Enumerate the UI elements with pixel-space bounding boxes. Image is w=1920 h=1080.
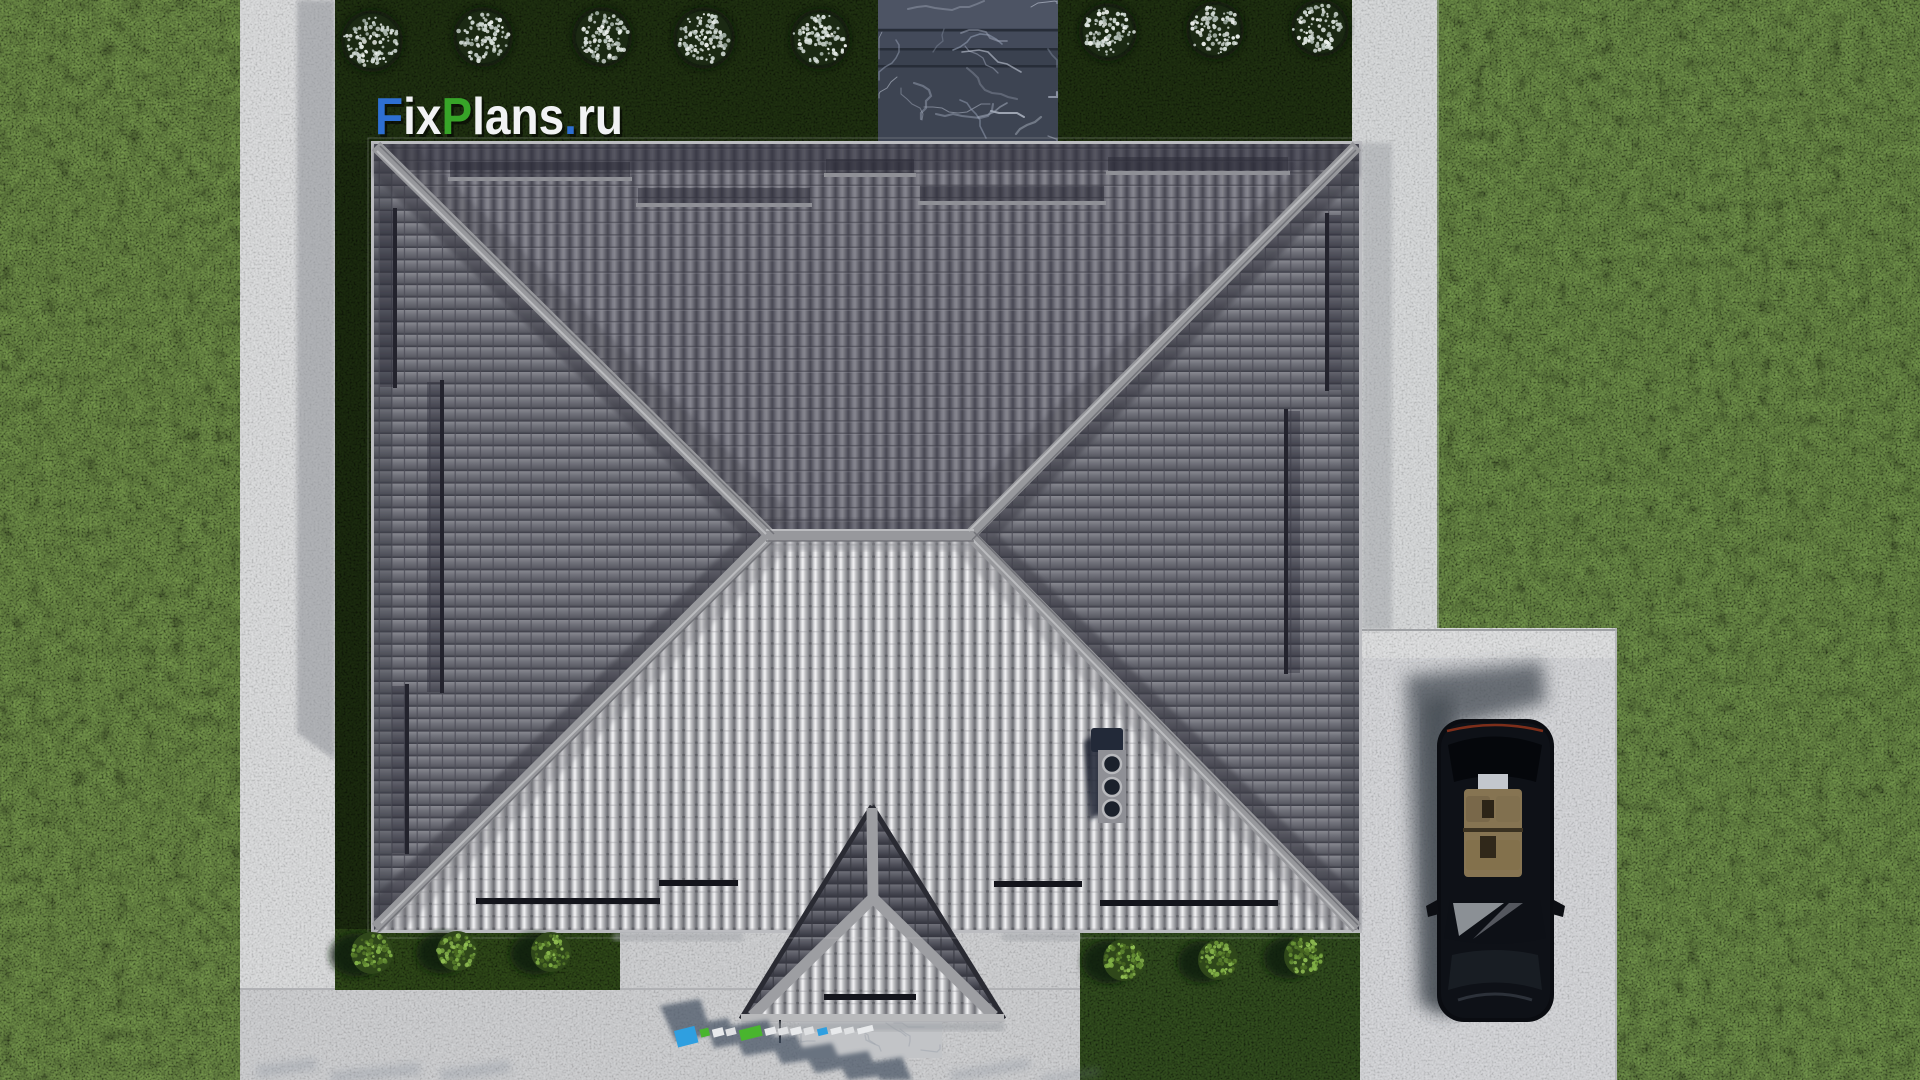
- svg-text:FixPlans.ru: FixPlans.ru: [375, 89, 623, 146]
